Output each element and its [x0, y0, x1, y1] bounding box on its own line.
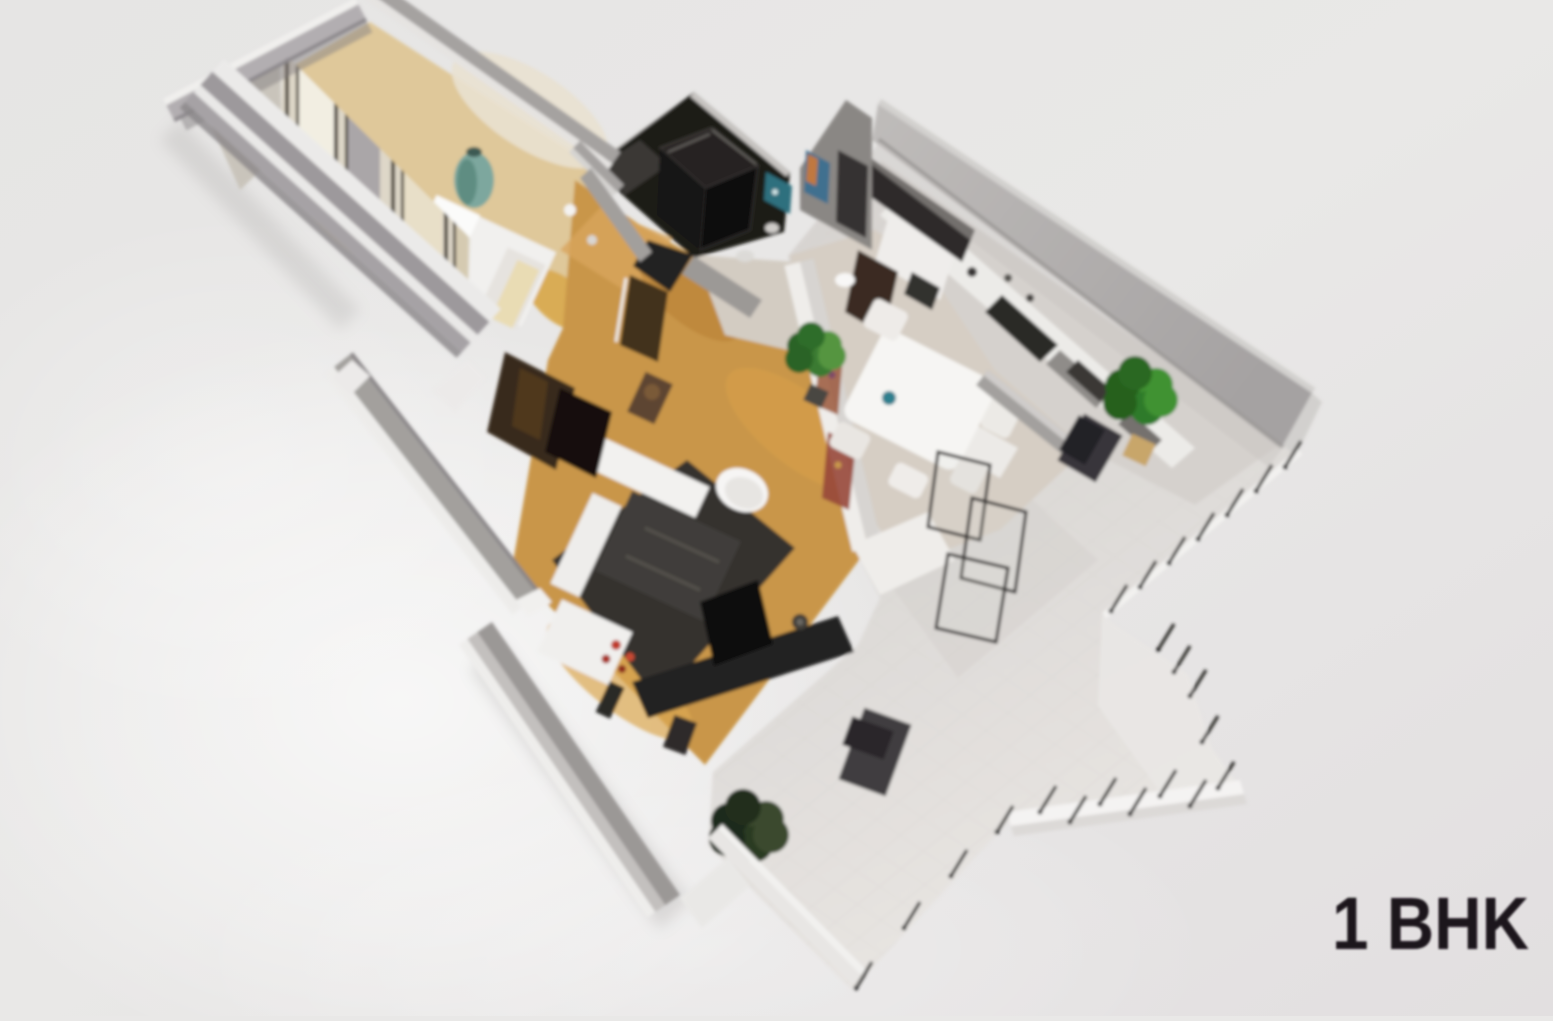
svg-text:1 BHK: 1 BHK — [1332, 882, 1529, 965]
